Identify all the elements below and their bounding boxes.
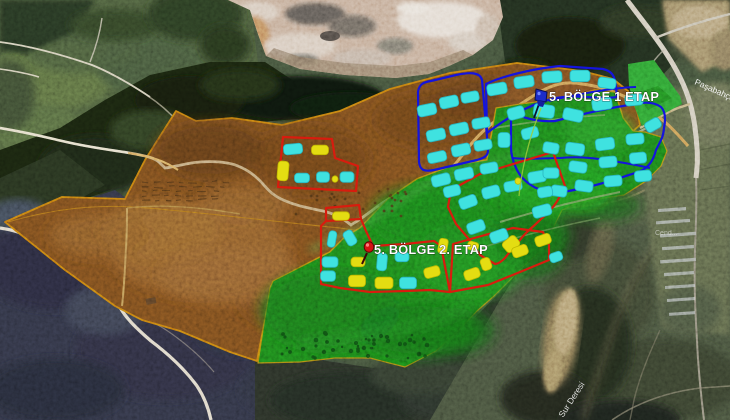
svg-text:5. BÖLGE 1 ETAP: 5. BÖLGE 1 ETAP xyxy=(549,89,659,104)
svg-text:5. BÖLGE 2. ETAP: 5. BÖLGE 2. ETAP xyxy=(374,242,488,257)
svg-text:Cend...: Cend... xyxy=(655,230,678,237)
